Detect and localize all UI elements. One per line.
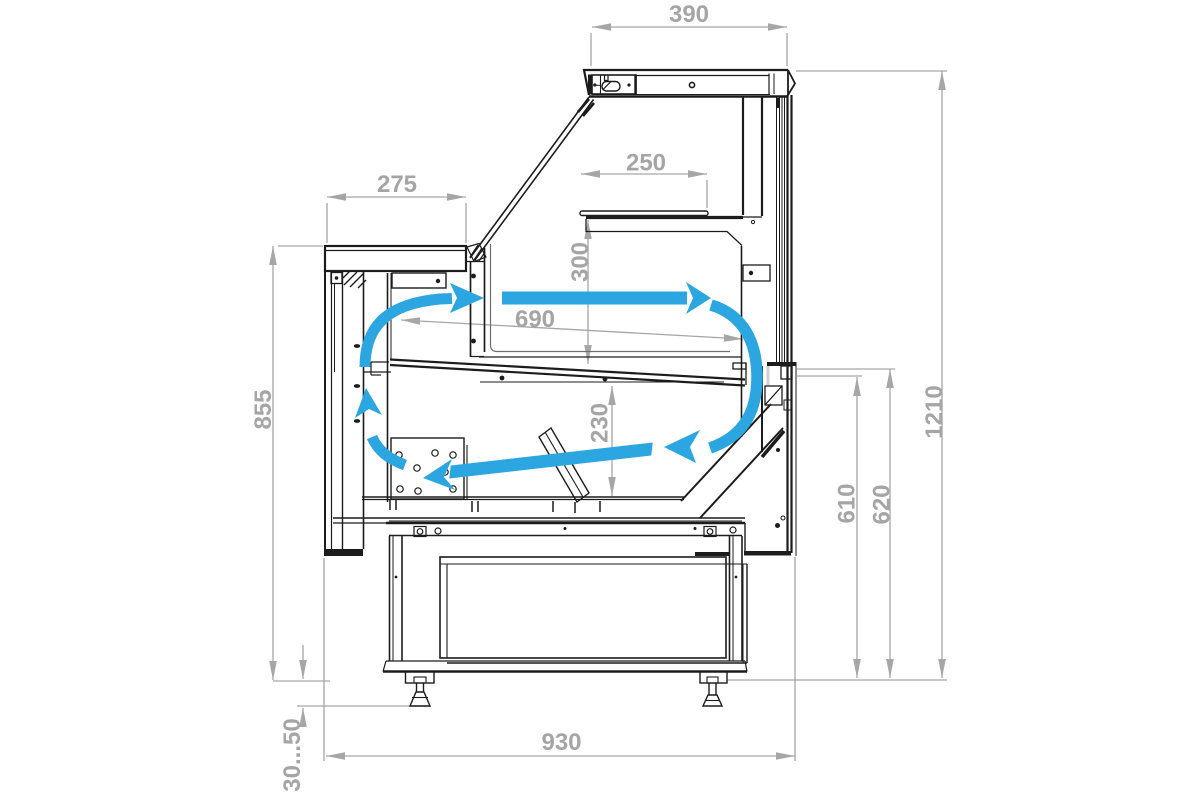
- svg-text:1210: 1210: [921, 385, 948, 438]
- svg-text:690: 690: [515, 306, 555, 333]
- svg-text:230: 230: [587, 403, 614, 443]
- svg-text:390: 390: [669, 1, 709, 28]
- svg-text:30...50: 30...50: [279, 718, 306, 791]
- svg-text:250: 250: [626, 150, 666, 177]
- svg-text:855: 855: [250, 389, 277, 429]
- svg-text:620: 620: [869, 484, 896, 524]
- svg-text:930: 930: [541, 729, 581, 756]
- svg-text:275: 275: [377, 171, 417, 198]
- svg-text:610: 610: [834, 483, 861, 523]
- svg-text:300: 300: [567, 242, 594, 282]
